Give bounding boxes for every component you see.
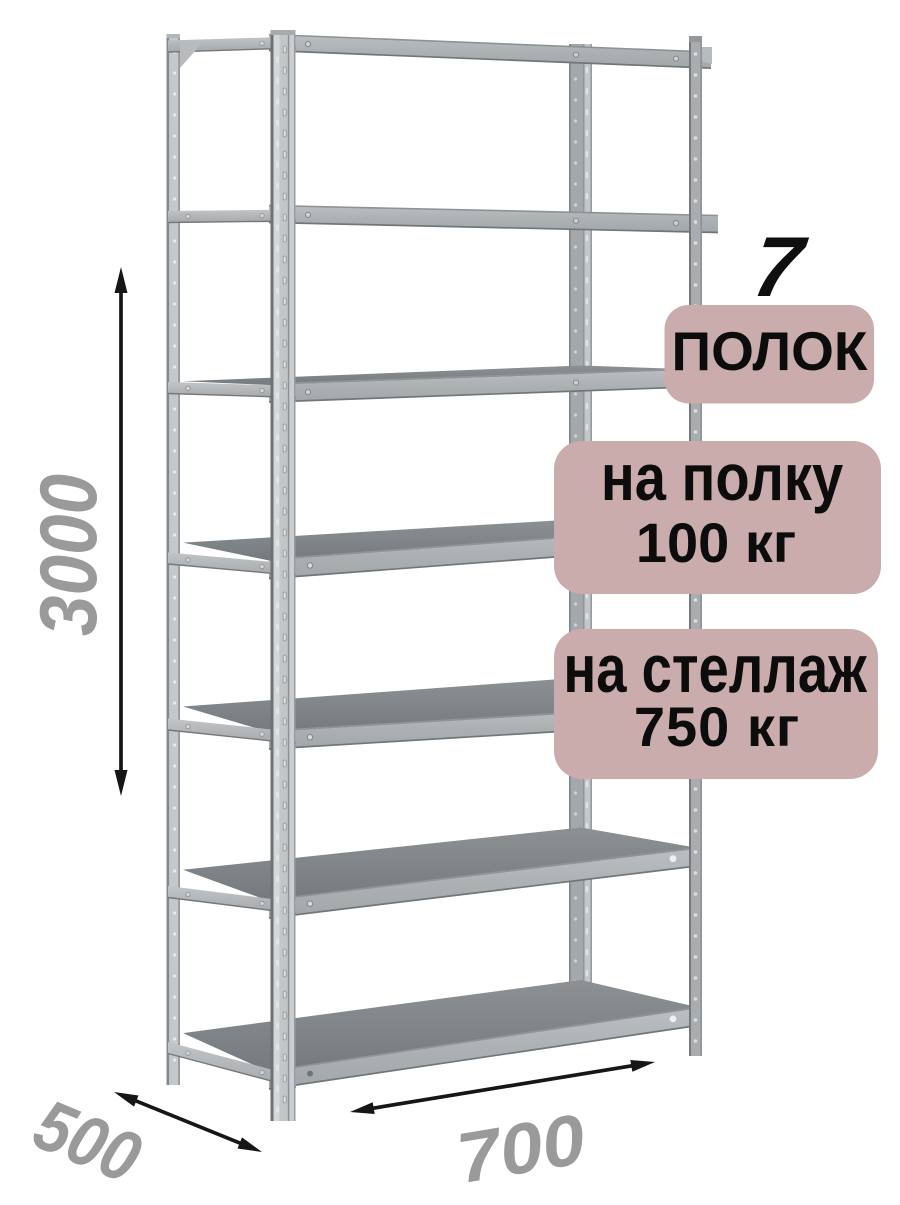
svg-text:100 кг: 100 кг	[636, 511, 796, 574]
svg-text:3000: 3000	[23, 474, 113, 636]
svg-text:750 кг: 750 кг	[634, 695, 800, 758]
svg-text:ПОЛОК: ПОЛОК	[672, 320, 868, 382]
svg-text:на полку: на полку	[601, 441, 843, 514]
